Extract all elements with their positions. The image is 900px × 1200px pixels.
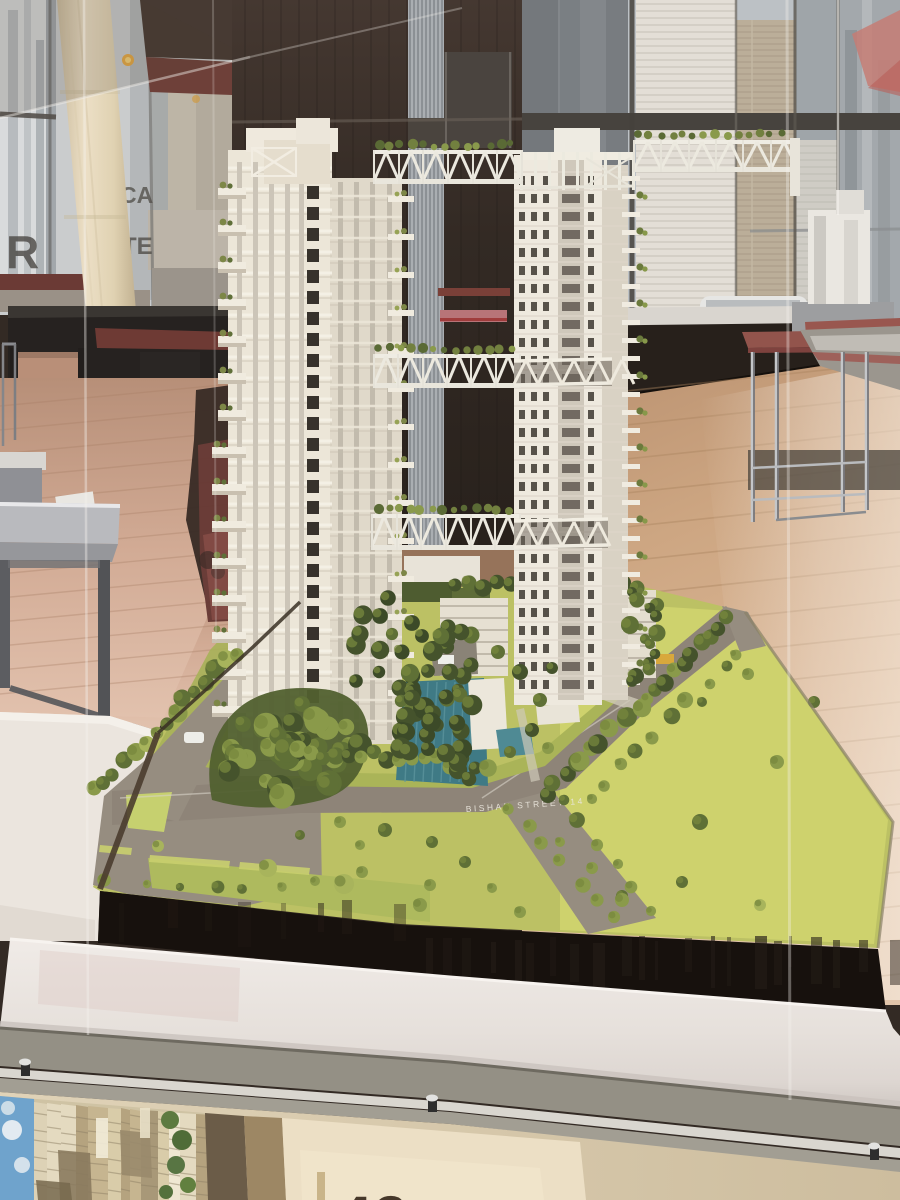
svg-text:R: R — [6, 226, 39, 278]
svg-text:49: 49 — [336, 1182, 409, 1200]
